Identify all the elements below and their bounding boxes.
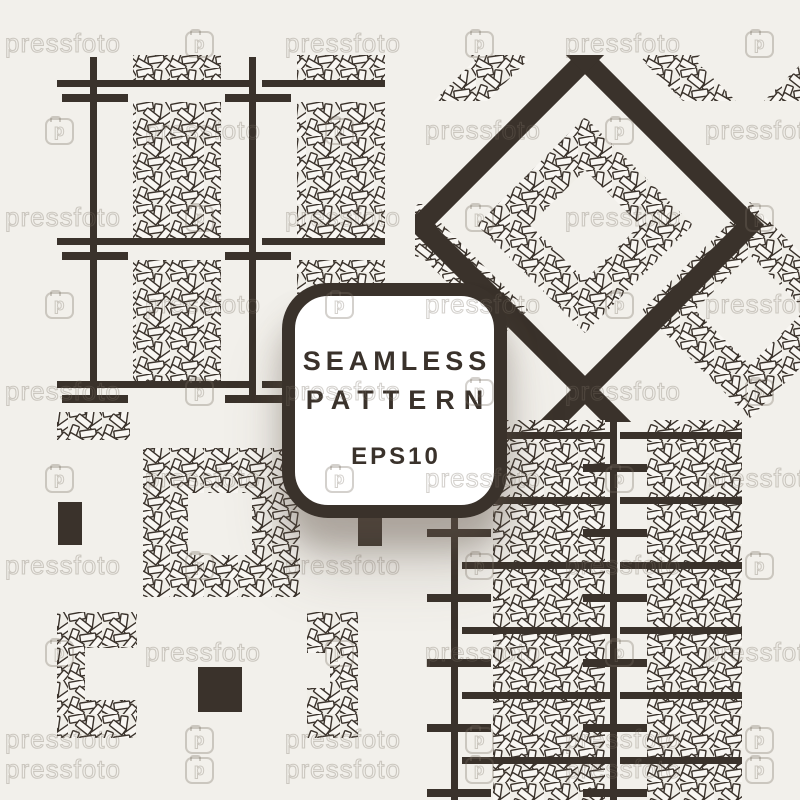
stock-image-preview: SEAMLESS PATTERN EPS10 pressfotopressfot… [0,0,800,800]
badge-subtitle: EPS10 [348,443,441,471]
badge-title-line1: SEAMLESS [298,346,492,377]
badge: SEAMLESS PATTERN EPS10 [282,283,507,518]
badge-title-line2: PATTERN [297,385,493,416]
